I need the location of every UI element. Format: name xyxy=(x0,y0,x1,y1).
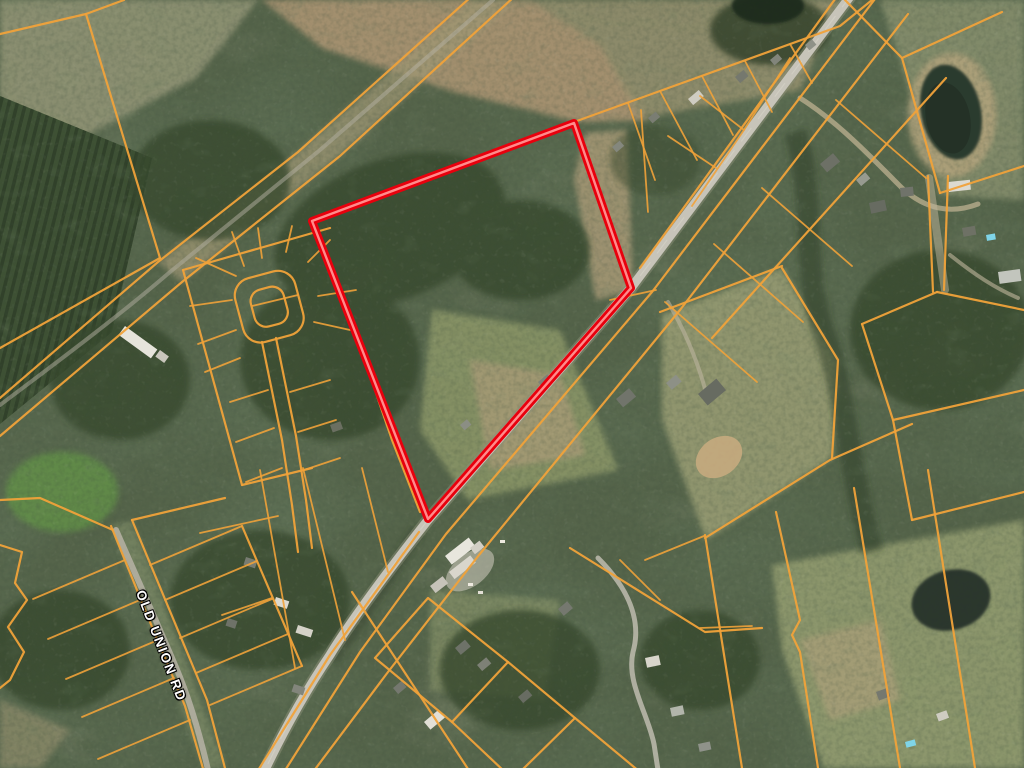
map-canvas xyxy=(0,0,1024,768)
satellite-map-view[interactable]: OLD UNION RD xyxy=(0,0,1024,768)
imagery-layer xyxy=(0,0,1024,768)
